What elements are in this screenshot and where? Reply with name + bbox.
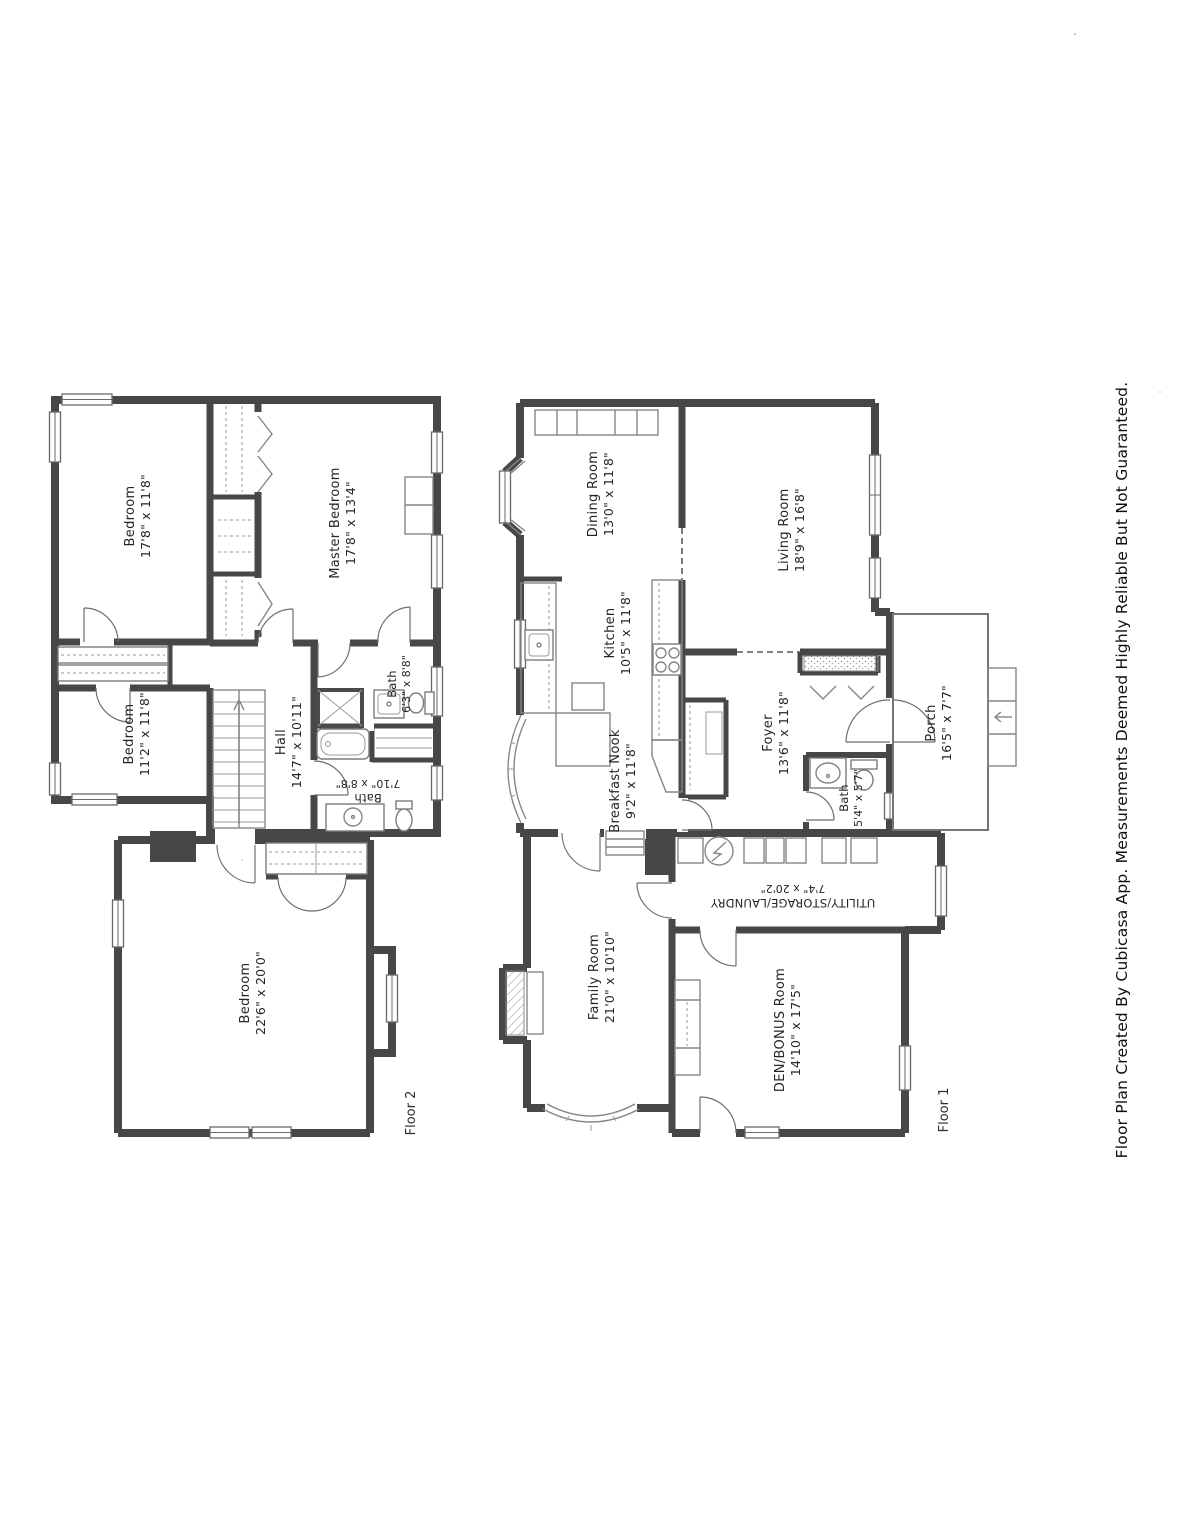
room-label-dining: Dining Room <box>586 451 601 537</box>
room-label-den: DEN/BONUS Room <box>773 968 788 1092</box>
room-label-nook: Breakfast Nook <box>608 729 623 833</box>
room-label-master-bedroom: Master Bedroom <box>328 467 343 579</box>
room-label-bedroom-top: Bedroom <box>123 486 138 547</box>
stove <box>653 644 681 675</box>
room-dims-living: 18'9" x 16'8" <box>792 488 807 572</box>
dining-cabinets <box>535 410 658 435</box>
room-dims-family: 21'0" x 10'10" <box>602 931 617 1023</box>
room-dims-bedroom-top: 17'8" x 11'8" <box>138 474 153 558</box>
caption-text: Floor Plan Created By Cubicasa App. Meas… <box>1113 382 1131 1159</box>
staircase-floor2 <box>213 690 265 828</box>
floor2-windows <box>50 394 443 1138</box>
room-label-kitchen: Kitchen <box>603 608 618 659</box>
utility-appliances <box>678 837 877 865</box>
room-dims-bath-upper: 6'3" x 8'8" <box>400 655 413 713</box>
bath-lower-sink <box>326 804 384 831</box>
scan-specks <box>241 33 1161 861</box>
den-shelving <box>675 980 700 1075</box>
floor2-title: Floor 2 <box>404 1091 419 1136</box>
bedroom-closets <box>218 406 272 636</box>
room-label-bath-floor1: Bath <box>837 784 851 812</box>
foyer-stairs <box>804 656 878 699</box>
kitchen-counter-left <box>521 583 556 713</box>
porch-structure <box>893 614 1016 830</box>
closet-shelving <box>58 647 168 681</box>
bath-sink-floor1 <box>810 758 846 788</box>
room-label-bath-lower: Bath <box>354 791 382 805</box>
bedroom-large-closet <box>266 843 367 874</box>
chimney-floor2 <box>150 831 196 862</box>
room-label-bedroom-large: Bedroom <box>238 963 253 1024</box>
shower <box>318 690 362 726</box>
floor1-fixtures <box>506 410 878 1075</box>
floor2-plan: Bedroom 17'8" x 11'8" Master Bedroom 17'… <box>50 394 443 1138</box>
bath-lower-toilet <box>396 801 412 831</box>
floor1-title: Floor 1 <box>937 1088 952 1133</box>
floorplan-canvas: Bedroom 17'8" x 11'8" Master Bedroom 17'… <box>0 0 1185 1536</box>
room-label-family: Family Room <box>587 934 602 1020</box>
room-label-bath-upper: Bath <box>385 670 399 698</box>
room-label-living: Living Room <box>777 488 792 571</box>
room-label-bedroom-mid: Bedroom <box>122 704 137 765</box>
room-dims-kitchen: 10'5" x 11'8" <box>618 591 633 675</box>
linen-closet <box>376 738 432 748</box>
room-dims-bath-floor1: 5'4" x 5'7" <box>852 769 865 827</box>
chimney-floor1 <box>645 833 673 875</box>
electrical-panel <box>705 837 733 865</box>
room-dims-utility: 7'4" x 20'2" <box>761 882 826 895</box>
room-dims-den: 14'10" x 17'5" <box>788 984 803 1076</box>
room-dims-bedroom-mid: 11'2" x 11'8" <box>137 692 152 776</box>
bathtub <box>317 729 369 759</box>
room-dims-bath-lower: 7'10" x 8'8" <box>336 777 401 790</box>
room-dims-nook: 9'2" x 11'8" <box>623 743 638 819</box>
fireplace <box>506 971 543 1035</box>
room-dims-porch: 16'5" x 7'7" <box>939 685 954 761</box>
master-wardrobe <box>405 477 433 534</box>
room-dims-bedroom-large: 22'6" x 20'0" <box>253 951 268 1035</box>
room-dims-hall: 14'7" x 10'11" <box>289 696 304 788</box>
kitchen-island <box>572 683 604 710</box>
room-label-porch: Porch <box>924 704 939 741</box>
room-label-hall: Hall <box>274 729 289 755</box>
scanned-floorplan-page: Bedroom 17'8" x 11'8" Master Bedroom 17'… <box>0 0 1185 1536</box>
floor1-plan: Dining Room 13'0" x 11'8" Living Room 18… <box>500 403 1017 1139</box>
room-label-foyer: Foyer <box>761 714 776 752</box>
room-dims-dining: 13'0" x 11'8" <box>601 452 616 536</box>
room-dims-master-bedroom: 17'8" x 13'4" <box>343 481 358 565</box>
kitchen-counter-right <box>652 580 682 792</box>
room-dims-foyer: 13'6" x 11'8" <box>776 691 791 775</box>
foyer-closet <box>690 705 722 790</box>
room-label-utility: UTILITY/STORAGE/LAUNDRY <box>710 896 875 910</box>
nook-table <box>556 713 610 766</box>
